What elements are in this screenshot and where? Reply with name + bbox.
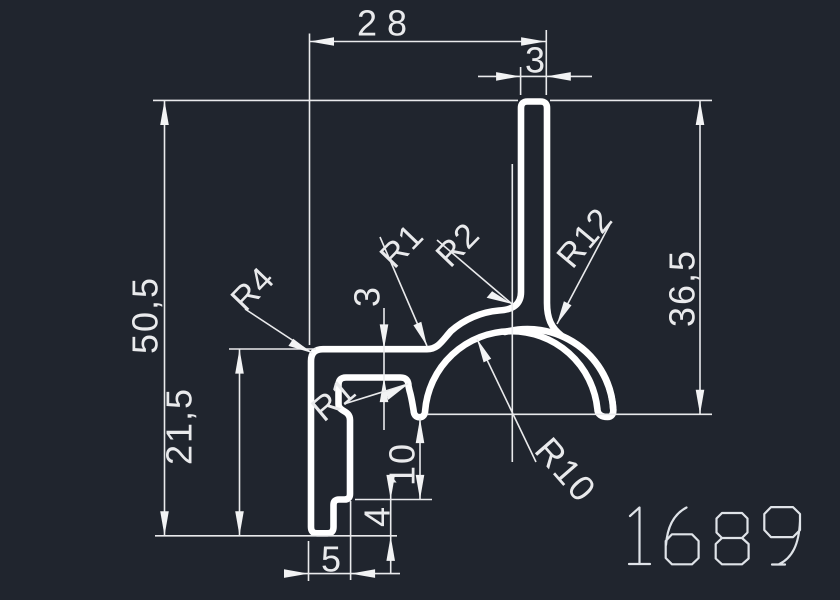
svg-text:5: 5: [321, 539, 341, 580]
svg-text:R12: R12: [549, 201, 620, 276]
svg-text:36,5: 36,5: [662, 249, 703, 327]
svg-text:3: 3: [347, 287, 388, 307]
svg-text:R1: R1: [373, 216, 432, 275]
svg-text:4: 4: [357, 507, 398, 527]
svg-text:28: 28: [357, 3, 417, 44]
svg-text:R10: R10: [527, 429, 605, 510]
svg-text:21,5: 21,5: [159, 387, 200, 465]
svg-text:R4: R4: [224, 259, 283, 318]
svg-text:3: 3: [525, 40, 545, 81]
svg-text:50,5: 50,5: [125, 276, 166, 354]
svg-text:R2: R2: [429, 215, 488, 274]
